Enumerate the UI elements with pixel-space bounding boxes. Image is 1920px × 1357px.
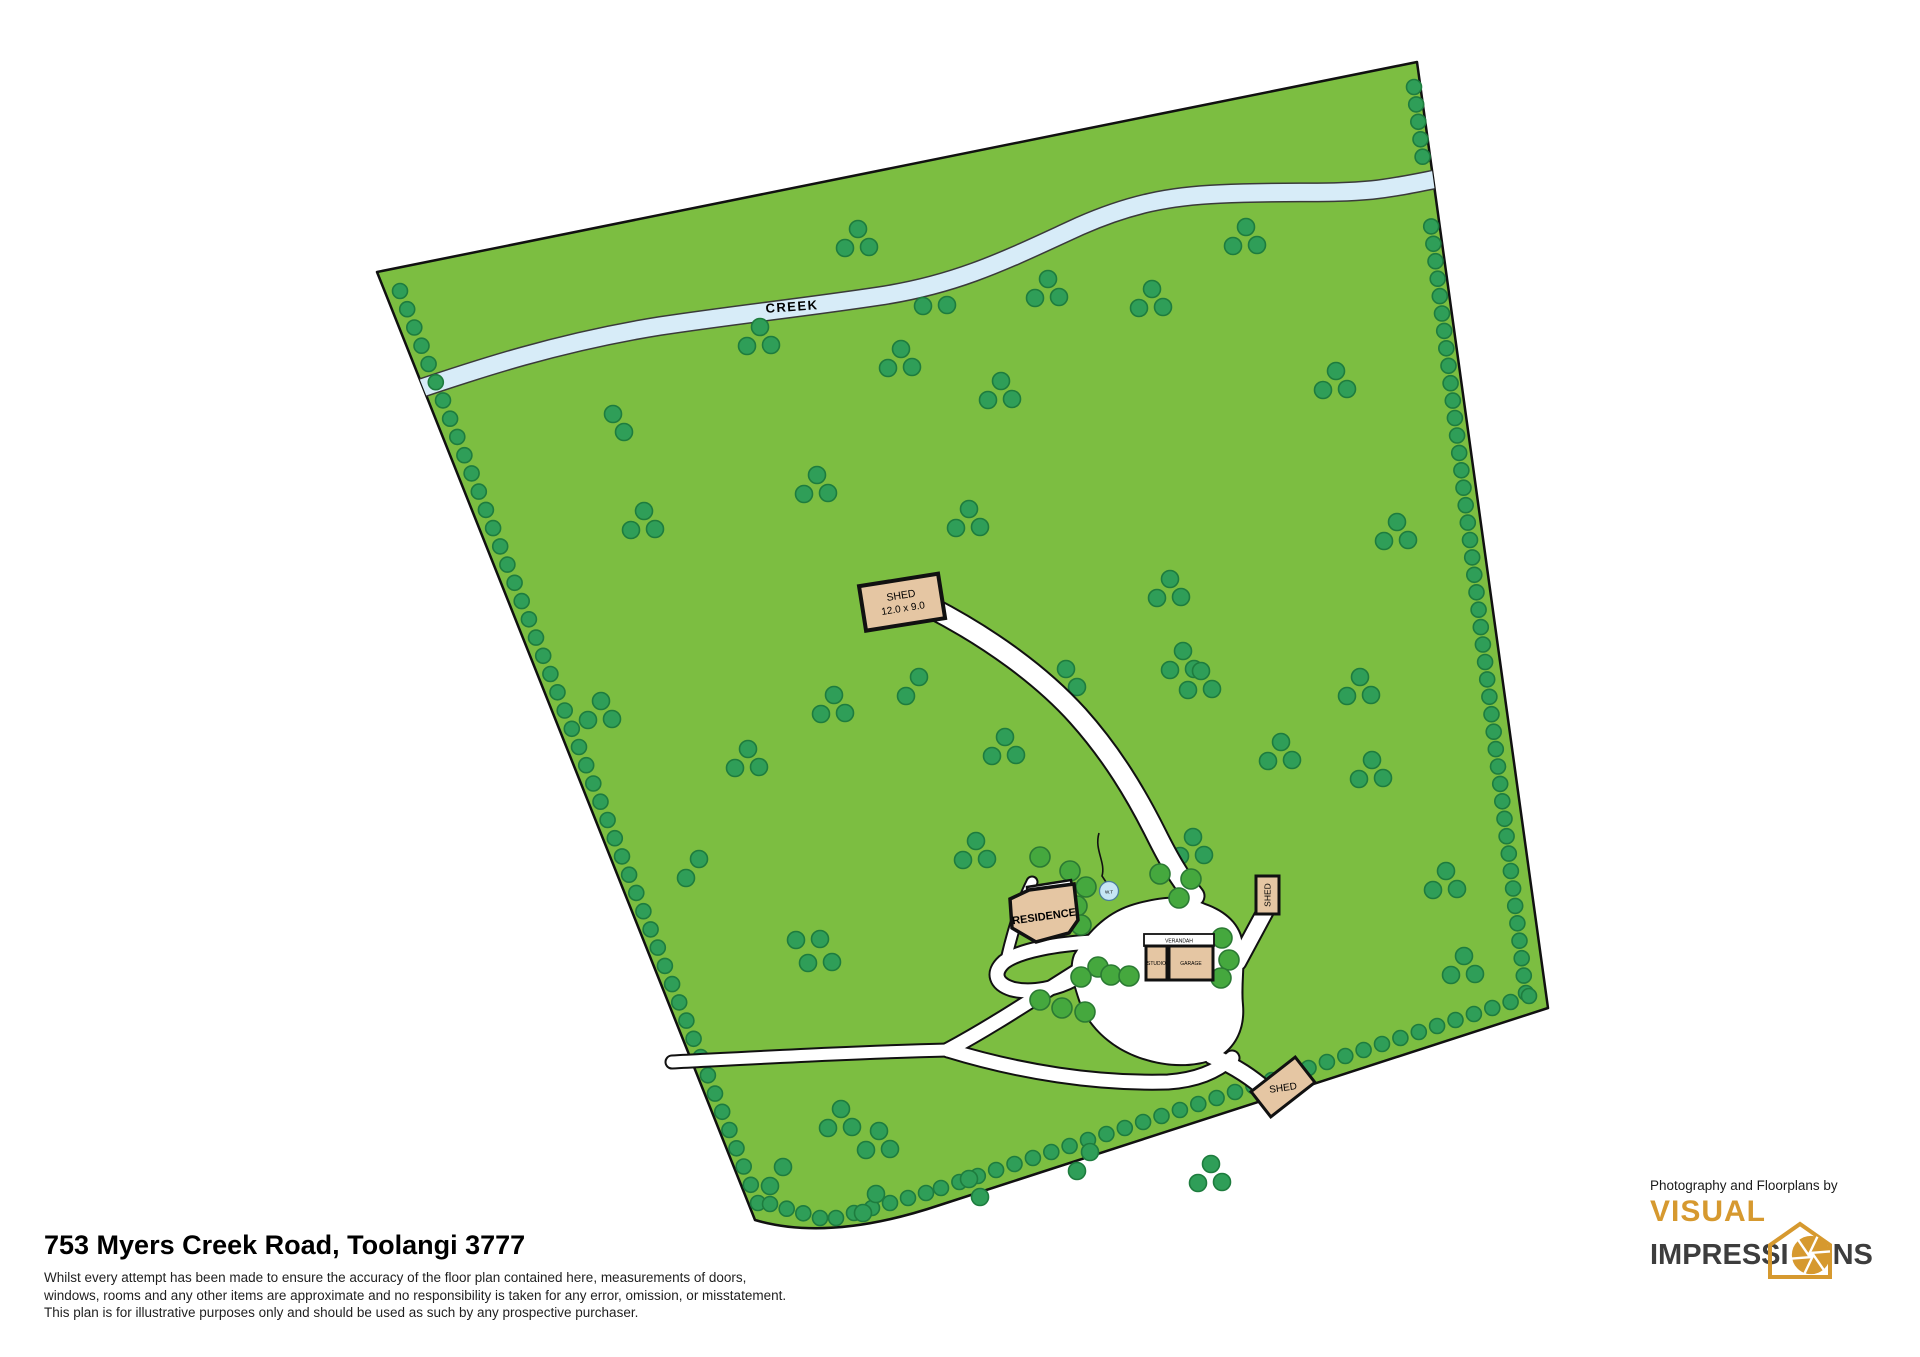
tree-icon [961,1171,978,1188]
tree-icon [1460,515,1475,530]
tree-icon [1155,299,1172,316]
tree-icon [1400,532,1417,549]
tree-icon [1467,567,1482,582]
tree-icon [672,995,687,1010]
shed-east: SHED [1256,876,1279,914]
tree-icon [1352,669,1369,686]
tree-icon [871,1123,888,1140]
tree-icon [1452,445,1467,460]
tree-icon [752,319,769,336]
tree-icon [1181,869,1201,889]
tree-icon [722,1123,737,1138]
tree-icon [868,1186,885,1203]
tree-icon [1007,1157,1022,1172]
tree-icon [647,521,664,538]
tree-icon [1465,550,1480,565]
tree-icon [858,1142,875,1159]
tree-icon [1339,381,1356,398]
site-plan-svg: CREEK [0,0,1920,1357]
tree-icon [855,1205,872,1222]
tree-icon [788,932,805,949]
tree-icon [1512,933,1527,948]
tree-icon [955,852,972,869]
tree-icon [1062,1139,1077,1154]
tree-icon [919,1186,934,1201]
tree-icon [1273,734,1290,751]
tree-icon [763,1197,778,1212]
tree-icon [898,688,915,705]
tree-icon [493,539,508,554]
tree-icon [1185,829,1202,846]
tree-icon [911,669,928,686]
tree-icon [1482,689,1497,704]
tree-icon [1439,341,1454,356]
tree-icon [615,849,630,864]
verandah: VERANDAH [1144,934,1214,946]
tree-icon [1437,323,1452,338]
tree-icon [813,706,830,723]
tree-icon [824,954,841,971]
tree-icon [1456,948,1473,965]
tree-icon [829,1211,844,1226]
tree-icon [1491,759,1506,774]
aperture-icon [1790,1234,1832,1282]
tree-icon [882,1141,899,1158]
tree-icon [727,760,744,777]
tree-icon [972,519,989,536]
tree-icon [478,502,493,517]
tree-icon [1225,238,1242,255]
tree-icon [979,851,996,868]
tree-icon [1450,428,1465,443]
tree-icon [1469,585,1484,600]
tree-icon [1447,411,1462,426]
tree-icon [1191,1097,1206,1112]
tree-icon [915,298,932,315]
tree-icon [1375,1037,1390,1052]
tree-icon [1219,950,1239,970]
tree-icon [650,940,665,955]
tree-icon [1180,682,1197,699]
tree-icon [1060,861,1080,881]
tree-icon [1376,533,1393,550]
garage: GARAGE [1169,946,1213,980]
tree-icon [1099,1127,1114,1142]
credit-block: Photography and Floorplans by VISUAL IMP… [1650,1178,1910,1279]
tree-icon [400,302,415,317]
tree-icon [1212,928,1232,948]
tree-icon [762,1178,779,1195]
tree-icon [1430,1019,1445,1034]
tree-icon [593,693,610,710]
tree-icon [1351,771,1368,788]
tree-icon [586,776,601,791]
tree-icon [1339,688,1356,705]
tree-icon [1389,514,1406,531]
tree-icon [1204,681,1221,698]
tree-icon [657,958,672,973]
studio: STUDIO [1146,946,1167,980]
tree-icon [1008,747,1025,764]
tree-icon [700,1068,715,1083]
tree-icon [948,520,965,537]
tree-icon [436,393,451,408]
tree-icon [1136,1115,1151,1130]
tree-icon [1058,661,1075,678]
tree-icon [1238,219,1255,236]
tree-icon [1516,968,1531,983]
tree-icon [1150,864,1170,884]
svg-text:STUDIO: STUDIO [1147,961,1166,967]
tree-icon [1025,1151,1040,1166]
tree-icon [850,221,867,238]
tree-icon [1497,811,1512,826]
tree-icon [893,341,910,358]
tree-icon [1260,753,1277,770]
tree-icon [1499,829,1514,844]
tree-icon [1426,236,1441,251]
tree-icon [507,575,522,590]
tree-icon [904,359,921,376]
big-shed: SHED 12.0 x 9.0 [859,574,945,631]
tree-icon [1044,1145,1059,1160]
tree-icon [1030,990,1050,1010]
tree-icon [536,648,551,663]
tree-icon [1508,898,1523,913]
tree-icon [457,448,472,463]
tree-icon [997,729,1014,746]
tree-icon [1454,463,1469,478]
tree-icon [414,338,429,353]
tree-icon [883,1196,898,1211]
tree-icon [820,485,837,502]
tree-icon [1407,80,1422,95]
tree-icon [1493,776,1508,791]
tree-icon [729,1141,744,1156]
tree-icon [1430,271,1445,286]
tree-icon [1522,989,1537,1004]
tree-icon [623,522,640,539]
tree-icon [1315,382,1332,399]
tree-icon [739,338,756,355]
tree-icon [1501,846,1516,861]
tree-icon [1441,358,1456,373]
tree-icon [812,931,829,948]
tree-icon [1480,672,1495,687]
tree-icon [543,667,558,682]
tree-icon [450,429,465,444]
tree-icon [901,1191,916,1206]
tree-icon [1458,498,1473,513]
tree-icon [1117,1121,1132,1136]
tree-icon [1364,752,1381,769]
tree-icon [1435,306,1450,321]
tree-icon [796,1206,811,1221]
tree-icon [550,685,565,700]
tree-icon [500,557,515,572]
tree-icon [1196,847,1213,864]
tree-icon [980,392,997,409]
tree-icon [1101,965,1121,985]
tree-icon [1203,1156,1220,1173]
tree-icon [1069,1163,1086,1180]
tree-icon [1443,376,1458,391]
tree-icon [968,833,985,850]
tree-icon [1438,863,1455,880]
tree-icon [1485,1001,1500,1016]
tree-icon [837,705,854,722]
tree-icon [678,870,695,887]
tree-icon [1172,1103,1187,1118]
tree-icon [984,748,1001,765]
tree-icon [580,712,597,729]
tree-icon [1463,533,1478,548]
tree-icon [1428,254,1443,269]
tree-icon [1051,289,1068,306]
tree-icon [1478,655,1493,670]
tree-icon [740,741,757,758]
tree-icon [572,740,587,755]
tree-icon [1424,219,1439,234]
tree-icon [600,813,615,828]
page: CREEK [0,0,1920,1357]
tree-icon [1338,1049,1353,1064]
tree-icon [1363,687,1380,704]
tree-icon [557,703,572,718]
tree-icon [1004,391,1021,408]
tree-icon [1071,967,1091,987]
tree-icon [993,373,1010,390]
tree-icon [1503,995,1518,1010]
tree-icon [529,630,544,645]
tree-icon [1131,300,1148,317]
tree-icon [1409,97,1424,112]
tree-icon [679,1013,694,1028]
tree-icon [486,521,501,536]
tree-icon [579,758,594,773]
tree-icon [1475,637,1490,652]
tree-icon [736,1159,751,1174]
tree-icon [443,411,458,426]
tree-icon [751,759,768,776]
tree-icon [1119,966,1139,986]
tree-icon [1154,1109,1169,1124]
tree-icon [1411,1025,1426,1040]
tree-icon [1514,951,1529,966]
brand-impressions-post: NS [1833,1240,1873,1270]
tree-icon [820,1120,837,1137]
tree-icon [1393,1031,1408,1046]
tree-icon [1144,281,1161,298]
tree-icon [844,1119,861,1136]
tree-icon [604,711,621,728]
tree-icon [1076,877,1096,897]
tree-icon [779,1201,794,1216]
tree-icon [1411,114,1426,129]
disclaimer-line: This plan is for illustrative purposes o… [44,1304,786,1322]
tree-icon [1149,590,1166,607]
tree-icon [1209,1091,1224,1106]
tree-icon [1162,662,1179,679]
tree-icon [605,406,622,423]
tree-icon [939,297,956,314]
svg-text:VERANDAH: VERANDAH [1165,939,1193,945]
tree-icon [1415,149,1430,164]
tree-icon [665,977,680,992]
tree-icon [464,466,479,481]
tree-icon [1495,794,1510,809]
tree-icon [593,794,608,809]
tree-icon [800,955,817,972]
tree-icon [1448,1013,1463,1028]
tree-icon [1082,1144,1099,1161]
tree-icon [428,375,443,390]
water-tank: W.T [1100,882,1119,901]
tree-icon [686,1031,701,1046]
tree-icon [629,885,644,900]
tree-icon [1052,998,1072,1018]
tree-icon [809,467,826,484]
footer: 753 Myers Creek Road, Toolangi 3777 Whil… [44,1230,786,1322]
tree-icon [743,1177,758,1192]
tree-icon [1456,480,1471,495]
tree-icon [1413,132,1428,147]
tree-icon [1075,1002,1095,1022]
tree-icon [826,687,843,704]
tree-icon [1449,881,1466,898]
tree-icon [813,1211,828,1226]
tree-icon [564,721,579,736]
tree-icon [1506,881,1521,896]
tree-icon [775,1159,792,1176]
tree-icon [1173,589,1190,606]
tree-icon [1190,1175,1207,1192]
tree-icon [616,424,633,441]
tree-icon [1488,742,1503,757]
tree-icon [1466,1007,1481,1022]
tree-icon [1510,916,1525,931]
tree-icon [1328,363,1345,380]
tree-icon [622,867,637,882]
tree-icon [1169,888,1189,908]
tree-icon [636,904,651,919]
tree-icon [1228,1085,1243,1100]
tree-icon [1193,663,1210,680]
tree-icon [1356,1043,1371,1058]
tree-icon [521,612,536,627]
tree-icon [1040,271,1057,288]
tree-icon [861,239,878,256]
tree-icon [961,501,978,518]
tree-icon [989,1163,1004,1178]
svg-text:GARAGE: GARAGE [1180,961,1202,967]
tree-icon [833,1101,850,1118]
tree-icon [1486,724,1501,739]
tree-icon [691,851,708,868]
tree-icon [1443,967,1460,984]
tree-icon [407,320,422,335]
tree-icon [934,1181,949,1196]
svg-text:SHED: SHED [1263,883,1273,907]
disclaimer-line: Whilst every attempt has been made to en… [44,1269,786,1287]
tree-icon [607,831,622,846]
tree-icon [1425,882,1442,899]
tree-icon [471,484,486,499]
tree-icon [636,503,653,520]
tree-icon [1027,290,1044,307]
tree-icon [1030,847,1050,867]
tree-icon [1445,393,1460,408]
tree-icon [1432,289,1447,304]
tree-icon [837,240,854,257]
tree-icon [393,284,408,299]
tree-icon [880,360,897,377]
tree-icon [708,1086,723,1101]
tree-icon [1484,707,1499,722]
svg-text:W.T: W.T [1105,890,1113,895]
tree-icon [1175,643,1192,660]
tree-icon [1284,752,1301,769]
credit-prefix: Photography and Floorplans by [1650,1178,1910,1193]
tree-icon [1503,864,1518,879]
disclaimer-line: windows, rooms and any other items are a… [44,1287,786,1305]
tree-icon [1162,571,1179,588]
tree-icon [1375,770,1392,787]
tree-icon [1467,966,1484,983]
tree-icon [763,337,780,354]
tree-icon [1249,237,1266,254]
tree-icon [1214,1174,1231,1191]
tree-icon [972,1189,989,1206]
tree-icon [1319,1055,1334,1070]
tree-icon [514,594,529,609]
residence: RESIDENCE [1010,884,1078,942]
tree-icon [796,486,813,503]
page-title: 753 Myers Creek Road, Toolangi 3777 [44,1230,786,1261]
tree-icon [643,922,658,937]
tree-icon [421,357,436,372]
tree-icon [715,1104,730,1119]
tree-icon [1473,620,1488,635]
tree-icon [1471,602,1486,617]
